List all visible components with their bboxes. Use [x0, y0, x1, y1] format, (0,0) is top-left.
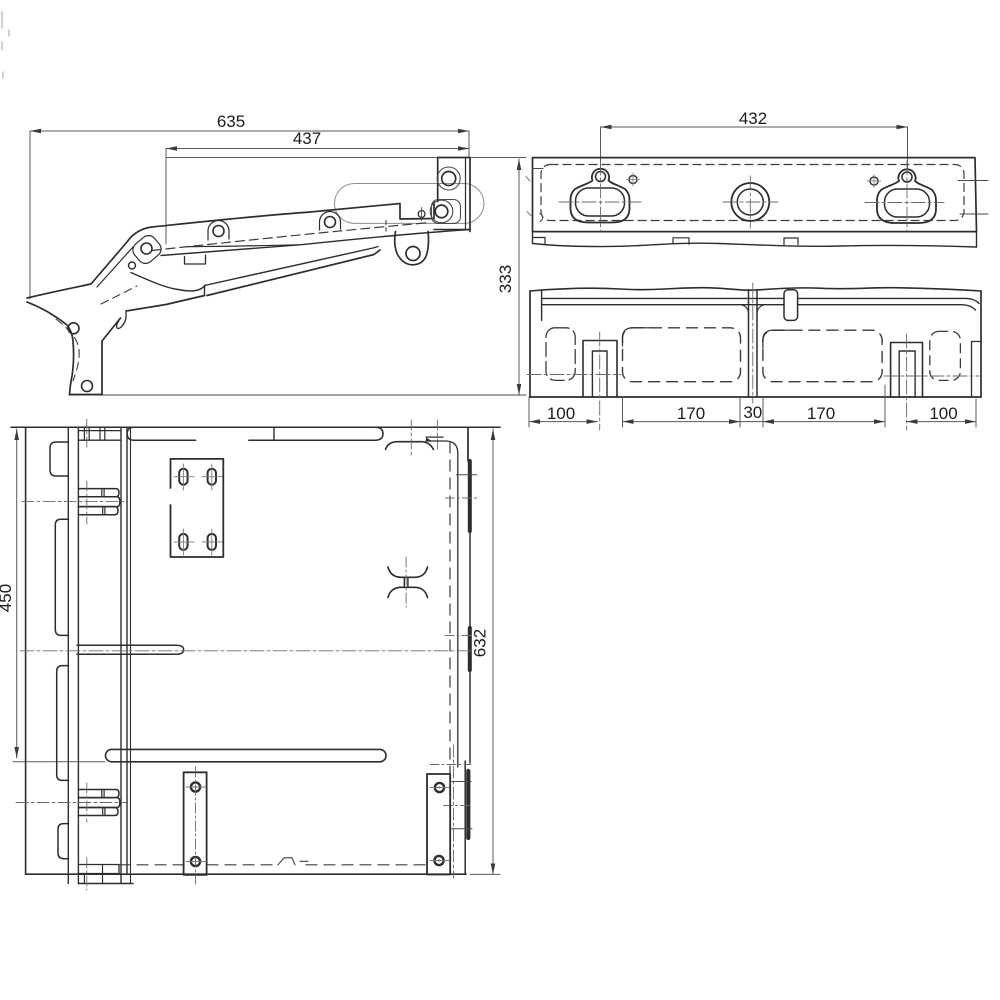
svg-text:632: 632 [471, 629, 490, 657]
svg-text:432: 432 [739, 109, 767, 128]
svg-text:635: 635 [217, 112, 245, 131]
svg-text:170: 170 [807, 404, 835, 423]
svg-text:100: 100 [547, 404, 575, 423]
svg-text:100: 100 [929, 404, 957, 423]
svg-text:450: 450 [0, 584, 15, 612]
svg-text:333: 333 [496, 265, 515, 293]
svg-text:437: 437 [293, 129, 321, 148]
svg-text:170: 170 [677, 404, 705, 423]
svg-text:30: 30 [743, 403, 762, 422]
